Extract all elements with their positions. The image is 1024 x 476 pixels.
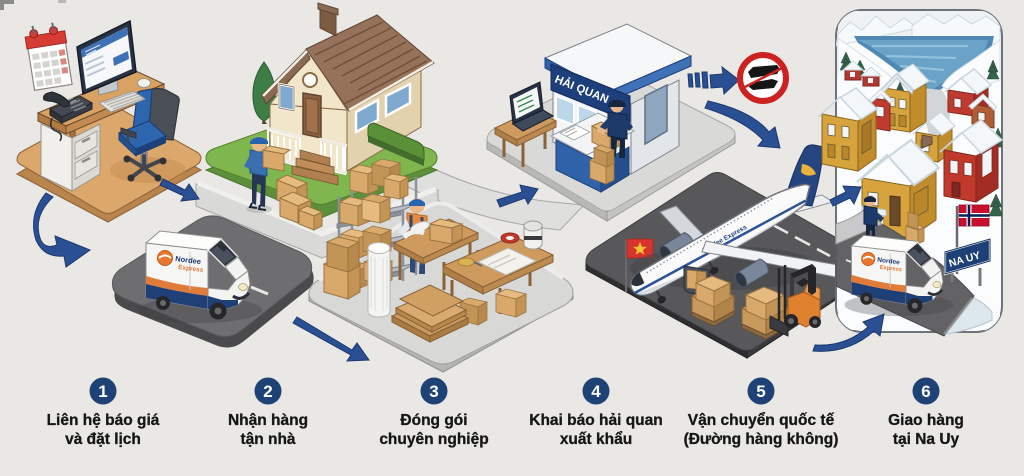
svg-text:4: 4: [591, 382, 601, 401]
svg-text:2: 2: [263, 382, 272, 401]
svg-text:và đặt lịch: và đặt lịch: [65, 431, 141, 448]
svg-text:5: 5: [756, 382, 765, 401]
svg-text:6: 6: [921, 382, 930, 401]
svg-text:tận nhà: tận nhà: [240, 431, 295, 448]
svg-text:Khai báo hải quan: Khai báo hải quan: [529, 412, 662, 429]
svg-text:1: 1: [98, 382, 107, 401]
svg-text:tại Na Uy: tại Na Uy: [893, 431, 960, 448]
svg-text:Liên hệ báo giá: Liên hệ báo giá: [47, 412, 160, 429]
svg-text:3: 3: [429, 382, 438, 401]
svg-text:Nhận hàng: Nhận hàng: [228, 412, 308, 429]
svg-text:Giao hàng: Giao hàng: [888, 412, 964, 429]
svg-text:Đóng gói: Đóng gói: [400, 412, 467, 429]
svg-text:(Đường hàng không): (Đường hàng không): [684, 431, 839, 448]
svg-text:xuất khẩu: xuất khẩu: [560, 431, 632, 448]
svg-text:chuyên nghiệp: chuyên nghiệp: [379, 431, 488, 448]
svg-text:Vận chuyển quốc tế: Vận chuyển quốc tế: [688, 412, 835, 429]
